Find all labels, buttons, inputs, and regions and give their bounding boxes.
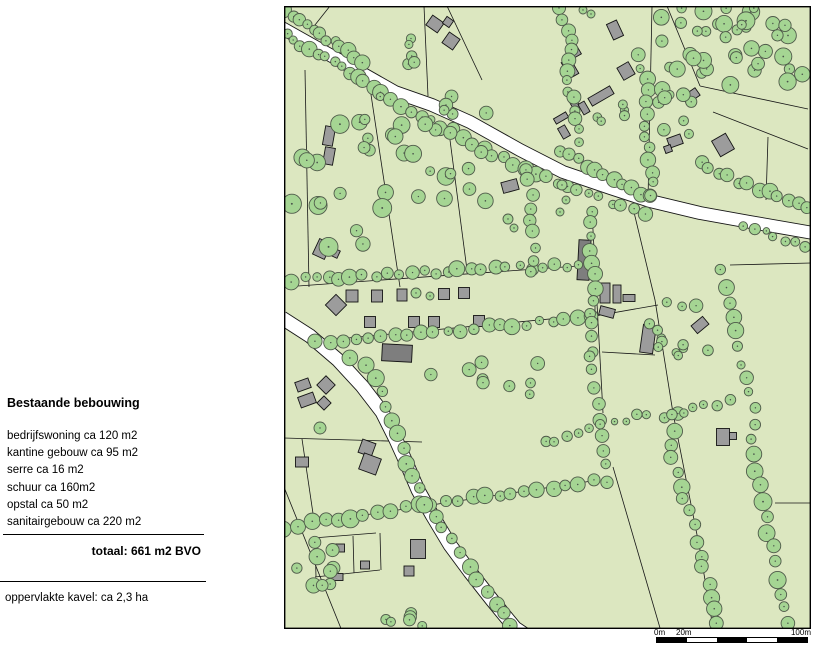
tree <box>750 419 761 430</box>
tree <box>503 214 513 224</box>
building <box>365 317 376 328</box>
tree <box>454 547 466 559</box>
tree <box>639 95 652 108</box>
tree <box>381 267 393 279</box>
tree <box>563 263 572 272</box>
tree <box>376 93 384 101</box>
tree <box>404 614 416 626</box>
building <box>623 295 635 302</box>
tree <box>292 563 302 573</box>
tree <box>656 35 668 47</box>
tree <box>653 9 669 25</box>
tree <box>667 423 683 439</box>
tree <box>425 368 438 381</box>
building <box>717 429 730 446</box>
tree <box>795 67 810 82</box>
tree <box>436 522 447 533</box>
tree <box>725 394 736 405</box>
tree <box>475 356 488 369</box>
tree <box>654 343 663 352</box>
tree <box>535 316 543 324</box>
tree <box>363 333 374 344</box>
scale-segment <box>657 638 687 642</box>
tree <box>406 266 420 280</box>
tree <box>746 446 762 462</box>
tree <box>779 602 789 612</box>
tree <box>574 153 584 163</box>
tree <box>299 153 314 168</box>
tree <box>405 145 422 162</box>
tree <box>309 536 321 548</box>
legend-title: Bestaande bebouwing <box>7 396 140 410</box>
tree <box>688 403 697 412</box>
tree <box>695 6 712 20</box>
tree <box>562 76 571 85</box>
tree <box>746 434 756 444</box>
tree <box>314 197 326 209</box>
tree <box>401 329 413 341</box>
tree <box>640 132 650 142</box>
tree <box>383 504 398 519</box>
divider <box>0 581 206 582</box>
tree <box>351 334 361 344</box>
building <box>382 344 413 363</box>
tree <box>584 351 595 362</box>
legend-item: bedrijfswoning ca 120 m2 <box>7 428 141 445</box>
tree <box>676 88 690 102</box>
tree <box>518 486 529 497</box>
tree <box>502 618 517 629</box>
tree <box>781 237 790 246</box>
tree <box>678 302 687 311</box>
tree <box>601 476 613 488</box>
tree <box>415 483 425 493</box>
tree <box>479 106 493 120</box>
tree <box>412 190 426 204</box>
tree <box>557 180 567 190</box>
tree <box>337 335 350 348</box>
tree <box>498 607 510 619</box>
building <box>730 433 737 440</box>
tree <box>567 90 581 104</box>
tree <box>437 191 453 207</box>
tree <box>562 431 572 441</box>
building <box>411 540 426 559</box>
parcel-area-label: oppervlakte kavel: ca 2,3 ha <box>5 592 148 604</box>
tree <box>338 62 346 70</box>
tree <box>445 168 456 179</box>
tree <box>426 292 434 300</box>
tree <box>556 208 564 216</box>
tree <box>750 402 761 413</box>
tree <box>703 345 714 356</box>
legend-item: kantine gebouw ca 95 m2 <box>7 445 141 462</box>
tree <box>662 298 671 307</box>
tree <box>768 232 776 240</box>
scale-label-100m: 100m <box>791 628 811 637</box>
tree <box>386 617 395 626</box>
building <box>296 457 309 467</box>
tree <box>324 564 338 578</box>
tree <box>324 336 338 350</box>
tree <box>449 261 465 277</box>
tree <box>316 579 328 591</box>
tree <box>680 409 689 418</box>
tree <box>284 274 299 290</box>
tree <box>720 168 733 181</box>
tree <box>601 459 611 469</box>
tree <box>562 196 570 204</box>
tree <box>308 334 322 348</box>
tree <box>377 386 387 396</box>
tree <box>313 273 322 282</box>
tree <box>631 48 645 62</box>
tree <box>389 425 405 441</box>
tree <box>528 256 539 267</box>
tree <box>525 203 537 215</box>
tree <box>563 148 575 160</box>
tree <box>557 312 570 325</box>
tree <box>526 224 540 238</box>
tree <box>684 505 695 516</box>
tree <box>740 176 754 190</box>
tree <box>426 326 438 338</box>
tree <box>719 280 735 296</box>
tree <box>594 192 603 201</box>
tree <box>367 370 384 387</box>
tree <box>779 73 796 90</box>
tree <box>444 126 457 139</box>
tree <box>791 237 800 246</box>
tree <box>408 57 420 69</box>
site-plan-map <box>284 6 811 629</box>
tree <box>463 183 476 196</box>
tree <box>800 241 811 252</box>
tree <box>527 189 540 202</box>
legend-item: serre ca 16 m2 <box>7 462 141 479</box>
tree <box>394 270 403 279</box>
tree <box>469 324 480 335</box>
building <box>459 288 470 299</box>
tree <box>595 429 609 443</box>
tree <box>595 419 605 429</box>
tree <box>703 578 717 592</box>
tree <box>640 152 655 167</box>
tree <box>623 418 630 425</box>
tree <box>420 266 429 275</box>
tree <box>588 266 603 281</box>
tree <box>732 341 742 351</box>
building <box>372 290 383 302</box>
tree <box>405 40 413 48</box>
tree <box>588 281 603 296</box>
tree <box>752 57 765 70</box>
tree <box>737 20 746 29</box>
tree <box>430 510 444 524</box>
tree <box>675 17 686 28</box>
tree <box>388 129 403 144</box>
tree <box>342 350 358 366</box>
tree <box>692 26 702 36</box>
tree <box>549 437 558 446</box>
tree <box>548 258 561 271</box>
tree <box>431 269 441 279</box>
tree <box>585 189 593 197</box>
building <box>361 561 370 569</box>
tree <box>715 264 726 275</box>
tree <box>707 601 722 616</box>
tree <box>737 361 745 369</box>
tree <box>418 117 433 132</box>
tree <box>452 496 463 507</box>
tree <box>356 269 367 280</box>
tree <box>372 272 382 282</box>
tree <box>586 330 598 342</box>
tree <box>716 15 733 32</box>
tree <box>478 193 494 209</box>
tree <box>689 299 703 313</box>
scale-segment <box>687 638 717 642</box>
tree <box>684 129 693 138</box>
tree <box>356 237 370 251</box>
building <box>346 290 358 302</box>
tree <box>658 123 671 136</box>
tree <box>667 409 678 420</box>
tree <box>801 202 811 214</box>
legend-item: opstal ca 50 m2 <box>7 497 141 514</box>
tree <box>358 142 370 154</box>
tree <box>665 439 678 452</box>
tree <box>571 184 583 196</box>
tree <box>326 544 339 557</box>
tree <box>475 264 486 275</box>
tree <box>588 382 600 394</box>
tree <box>588 474 600 486</box>
tree <box>632 409 643 420</box>
tree <box>639 121 649 131</box>
tree <box>444 327 453 336</box>
scale-segment <box>777 638 807 642</box>
tree <box>585 424 594 433</box>
tree <box>664 450 678 464</box>
tree <box>481 586 494 599</box>
tree <box>619 111 629 121</box>
tree <box>784 64 794 74</box>
tree <box>762 511 774 523</box>
tree <box>570 310 586 326</box>
scale-segment <box>717 638 747 642</box>
tree <box>644 142 655 153</box>
tree <box>739 222 748 231</box>
tree <box>374 330 387 343</box>
tree <box>722 76 739 93</box>
tree <box>380 401 391 412</box>
tree <box>301 272 310 281</box>
tree <box>525 390 534 399</box>
tree <box>405 468 420 483</box>
legend-item: sanitairgebouw ca 220 m2 <box>7 514 141 531</box>
tree <box>699 401 707 409</box>
tree <box>304 513 320 529</box>
tree <box>477 376 489 388</box>
tree <box>400 501 412 513</box>
tree <box>586 364 596 374</box>
tree <box>641 83 655 97</box>
tree <box>587 10 595 18</box>
tree <box>321 36 331 46</box>
tree <box>331 115 350 134</box>
tree <box>614 199 626 211</box>
tree <box>538 263 547 272</box>
tree <box>477 487 493 503</box>
tree <box>462 162 475 175</box>
scale-segment <box>747 638 777 642</box>
tree <box>597 445 610 458</box>
building <box>397 289 407 301</box>
tree <box>772 30 783 41</box>
tree <box>570 477 585 492</box>
tree <box>568 112 582 126</box>
tree <box>695 559 709 573</box>
tree <box>355 55 370 70</box>
tree <box>291 519 306 534</box>
tree <box>546 481 561 496</box>
tree <box>769 555 781 567</box>
tree <box>341 269 357 285</box>
tree <box>771 191 782 202</box>
tree <box>447 533 458 544</box>
tree <box>775 589 787 601</box>
tree <box>284 194 301 213</box>
tree <box>319 513 332 526</box>
tree <box>648 177 658 187</box>
tree <box>462 363 476 377</box>
tree <box>309 549 325 565</box>
tree <box>611 418 618 425</box>
tree <box>426 167 435 176</box>
tree <box>526 378 536 388</box>
tree <box>686 51 701 66</box>
tree <box>319 237 338 256</box>
tree <box>411 288 421 298</box>
tree <box>587 232 595 240</box>
tree <box>690 536 704 550</box>
legend-total: totaal: 661 m2 BVO <box>0 544 201 558</box>
tree <box>575 138 584 147</box>
tree <box>727 322 743 338</box>
tree <box>378 185 394 201</box>
tree <box>775 48 792 65</box>
tree <box>469 572 484 587</box>
site-plan-page: Bestaande bebouwing bedrijfswoning ca 12… <box>0 0 815 647</box>
tree <box>679 116 689 126</box>
tree <box>758 44 772 58</box>
tree <box>744 387 752 395</box>
tree <box>676 493 688 505</box>
tree <box>653 325 663 335</box>
tree <box>500 262 510 272</box>
tree <box>678 340 688 350</box>
tree <box>520 172 534 186</box>
tree <box>744 41 759 56</box>
tree <box>724 297 736 309</box>
tree <box>574 261 582 269</box>
tree <box>712 401 722 411</box>
tree <box>416 496 433 513</box>
tree <box>638 207 652 221</box>
tree <box>574 429 583 438</box>
tree <box>398 442 410 454</box>
tree <box>636 65 644 73</box>
tree <box>640 107 654 121</box>
building <box>613 285 621 303</box>
tree <box>475 146 488 159</box>
tree <box>356 509 368 521</box>
tree <box>531 243 541 253</box>
tree <box>753 477 769 493</box>
scale-label-20m: 20m <box>676 628 692 637</box>
building <box>404 566 414 576</box>
legend-item-list: bedrijfswoning ca 120 m2 kantine gebouw … <box>7 428 141 531</box>
tree <box>440 495 451 506</box>
tree <box>740 371 754 385</box>
tree <box>504 488 516 500</box>
tree <box>585 316 598 329</box>
tree <box>406 106 417 117</box>
scale-bar: 0m 20m 100m <box>656 628 808 644</box>
tree <box>593 398 606 411</box>
tree <box>584 216 597 229</box>
tree <box>453 325 467 339</box>
tree <box>690 519 701 530</box>
scale-bar-segments <box>656 637 808 643</box>
tree <box>334 187 346 199</box>
scale-label-0m: 0m <box>654 628 665 637</box>
tree <box>645 190 657 202</box>
tree <box>766 16 780 30</box>
tree <box>730 52 742 64</box>
tree <box>320 52 329 61</box>
tree <box>373 199 392 218</box>
tree <box>525 266 536 277</box>
tree <box>588 296 599 307</box>
building <box>439 289 450 300</box>
tree <box>560 480 571 491</box>
tree <box>779 19 791 31</box>
tree <box>504 319 520 335</box>
tree <box>618 100 627 109</box>
tree <box>754 493 772 511</box>
tree <box>597 117 605 125</box>
tree <box>531 357 545 371</box>
tree <box>360 114 370 124</box>
tree <box>674 351 683 360</box>
tree <box>669 61 685 77</box>
tree <box>642 411 650 419</box>
tree <box>749 223 760 234</box>
tree <box>522 321 531 330</box>
tree <box>720 32 731 43</box>
tree <box>763 228 770 235</box>
tree <box>439 105 449 115</box>
tree <box>658 91 672 105</box>
tree <box>767 539 781 553</box>
tree <box>702 162 713 173</box>
legend-item: schuur ca 160m2 <box>7 480 141 497</box>
tree <box>769 571 786 588</box>
tree <box>673 467 683 477</box>
divider <box>3 534 204 535</box>
